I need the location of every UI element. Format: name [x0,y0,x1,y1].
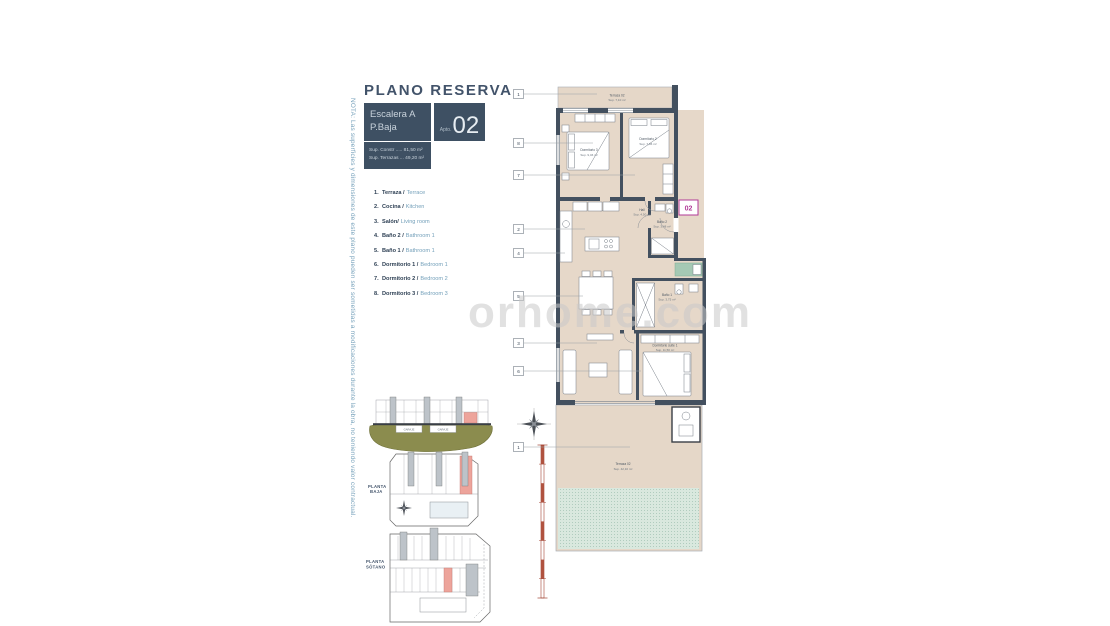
svg-text:Sup. 7,96 m²: Sup. 7,96 m² [639,142,656,146]
legend-item: 3.Salón/Living room [374,220,504,226]
callout-3: 3 [514,339,524,348]
scale-bar [538,445,548,598]
svg-text:Sup. 3,48 m²: Sup. 3,48 m² [653,225,670,229]
section-strip: GARAJE GARAJE [370,397,493,452]
svg-text:Sup. 9,46 m²: Sup. 9,46 m² [580,153,597,157]
stair-floor-box: Escalera A P.Baja [364,103,431,141]
svg-text:Hall: Hall [639,208,645,212]
svg-text:Dormitorio 3: Dormitorio 3 [580,148,598,152]
unit-badge: 02 [679,200,698,215]
svg-text:GARAJE: GARAJE [404,427,415,431]
apartment-number-box: Apto. 02 [434,103,485,141]
sup-terrazas: Sup. Terrazas ... 49,20 m² [369,155,431,163]
svg-text:Sup. 7,10 m²: Sup. 7,10 m² [608,98,625,102]
svg-text:Sup. 11,50 m²: Sup. 11,50 m² [656,348,675,352]
svg-text:1: 1 [517,445,520,450]
svg-text:Sup. 3,75 m²: Sup. 3,75 m² [658,298,675,302]
floor-plan: Terraza 02 Sup. 7,10 m² Terraza 02 Sup. … [505,80,720,605]
legend-item: 2.Cocina /Kitchen [374,205,504,211]
svg-text:8: 8 [517,141,520,146]
stair-label: Escalera A [370,108,431,121]
callout-1-bottom: 1 [514,443,524,452]
svg-text:02: 02 [685,206,693,213]
legend-item: 4.Baño 2 /Bathroom 1 [374,234,504,240]
apto-number: 02 [452,115,479,137]
svg-text:BAJA: BAJA [370,489,383,494]
plan-reserva-page: NOTA: Las superficies y dimensiones de e… [0,0,1110,626]
legend-item: 1.Terraza /Terrace [374,191,504,197]
keyplan-planta-baja: PLANTA BAJA [368,452,478,526]
terrace-bbq-unit [672,407,700,442]
svg-text:Dormitorio suite 1: Dormitorio suite 1 [653,344,678,348]
svg-text:1: 1 [517,92,520,97]
svg-text:Terraza 02: Terraza 02 [615,462,630,466]
callout-1-top: 1 [514,90,524,99]
svg-text:Terraza 02: Terraza 02 [609,94,624,98]
legend-item: 5.Baño 1 /Bathroom 1 [374,249,504,255]
apto-label: Apto. [440,127,452,133]
callout-8: 8 [514,139,524,148]
laundry [675,263,702,276]
svg-text:2: 2 [517,227,520,232]
svg-text:7: 7 [517,173,520,178]
svg-text:6: 6 [517,369,520,374]
svg-text:4: 4 [517,251,520,256]
callout-2: 2 [514,225,524,234]
callout-7: 7 [514,171,524,180]
callout-6: 6 [514,367,524,376]
svg-text:Sup. 42,10 m²: Sup. 42,10 m² [614,467,633,471]
legend-item: 7.Dormitorio 2 /Bedroom 2 [374,277,504,283]
sup-constr: Sup. Constr ..... 81,50 m² [369,147,431,155]
svg-text:Sup. 4,50 m²: Sup. 4,50 m² [633,213,650,217]
room-legend: 1.Terraza /Terrace 2.Cocina /Kitchen 3.S… [374,191,504,306]
svg-text:5: 5 [517,294,520,299]
callout-4: 4 [514,249,524,258]
svg-text:SÓTANO: SÓTANO [366,565,386,570]
svg-text:Baño 1: Baño 1 [662,293,672,297]
callout-5: 5 [514,292,524,301]
legend-item: 6.Dormitorio 1 /Bedroom 1 [374,263,504,269]
room-terraza-top: Terraza 02 Sup. 7,10 m² [558,85,678,108]
svg-text:Dormitorio 2: Dormitorio 2 [639,137,657,141]
svg-text:PLANTA: PLANTA [366,559,384,564]
surfaces-box: Sup. Constr ..... 81,50 m² Sup. Terrazas… [364,142,431,169]
svg-text:GARAJE: GARAJE [438,427,449,431]
svg-text:Baño 2: Baño 2 [657,220,667,224]
side-note: NOTA: Las superficies y dimensiones de e… [344,98,356,528]
legend-item: 8.Dormitorio 3 /Bedroom 3 [374,292,504,298]
keyplan-planta-sotano: PLANTA SÓTANO [366,528,490,622]
key-plans: GARAJE GARAJE PLANTA BAJA [360,392,500,626]
floor-label: P.Baja [370,121,431,134]
compass-icon [517,408,551,440]
svg-text:3: 3 [517,341,520,346]
dining-furniture [579,271,613,315]
